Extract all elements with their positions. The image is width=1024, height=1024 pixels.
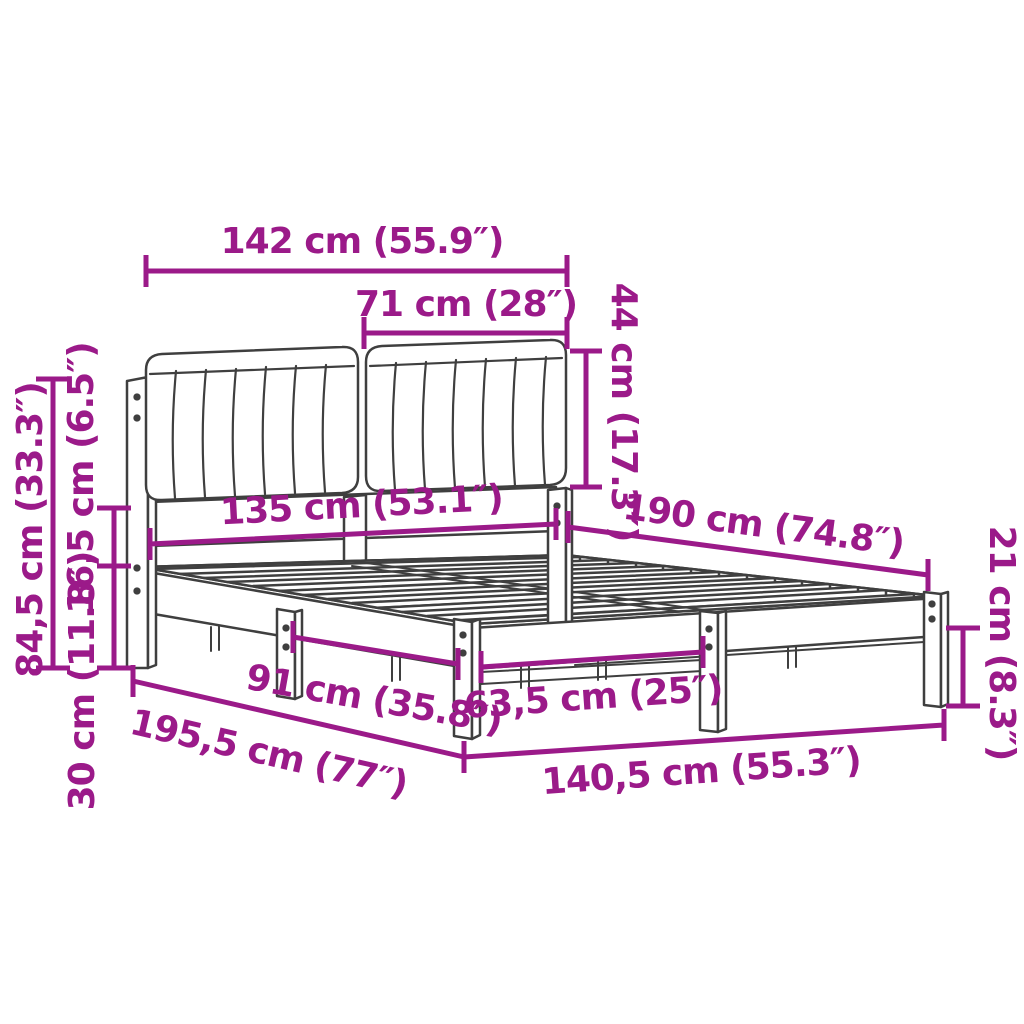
leg-side bbox=[941, 592, 948, 707]
dim-headboard-total-width: 142 cm (55.9″) bbox=[146, 221, 567, 287]
dim-label: 63,5 cm (25″) bbox=[463, 668, 724, 727]
dim-label: 71 cm (28″) bbox=[355, 284, 577, 325]
screw-dot bbox=[555, 504, 560, 509]
dim-label-rail-height: 30 cm (11.8″) bbox=[62, 552, 103, 811]
dim-label: 84,5 cm (33.3″) bbox=[10, 382, 51, 678]
leg-face bbox=[924, 592, 941, 707]
bed-frame-diagram-svg: 142 cm (55.9″) 71 cm (28″) 44 cm (17.3″)… bbox=[0, 0, 1024, 1024]
dim-line bbox=[946, 628, 980, 706]
screw-dot bbox=[707, 645, 712, 650]
screw-dot bbox=[930, 602, 935, 607]
dim-label: 21 cm (8.3″) bbox=[981, 526, 1022, 761]
screw-dot bbox=[461, 633, 466, 638]
dim-underbed-clearance: 21 cm (8.3″) bbox=[946, 526, 1022, 761]
screw-dot bbox=[707, 627, 712, 632]
dimension-diagram: 142 cm (55.9″) 71 cm (28″) 44 cm (17.3″)… bbox=[0, 0, 1024, 1024]
screw-dot bbox=[135, 589, 140, 594]
headboard-cushion-right bbox=[366, 340, 566, 491]
headboard-cushion-left bbox=[146, 347, 358, 500]
slat-clip bbox=[392, 656, 400, 681]
screw-dot bbox=[135, 416, 140, 421]
dim-gap-and-rail-height: 16,5 cm (6.5″) 30 cm (11.8″) bbox=[61, 342, 131, 810]
screw-dot bbox=[284, 626, 289, 631]
screw-dot bbox=[135, 566, 140, 571]
screw-dot bbox=[135, 395, 140, 400]
dim-line bbox=[570, 351, 602, 487]
dim-label: 142 cm (55.9″) bbox=[221, 221, 504, 262]
screw-dot bbox=[930, 617, 935, 622]
screw-dot bbox=[284, 645, 289, 650]
leg-far-foot bbox=[924, 592, 948, 707]
slat-clip bbox=[211, 626, 219, 651]
screw-dot bbox=[461, 651, 466, 656]
